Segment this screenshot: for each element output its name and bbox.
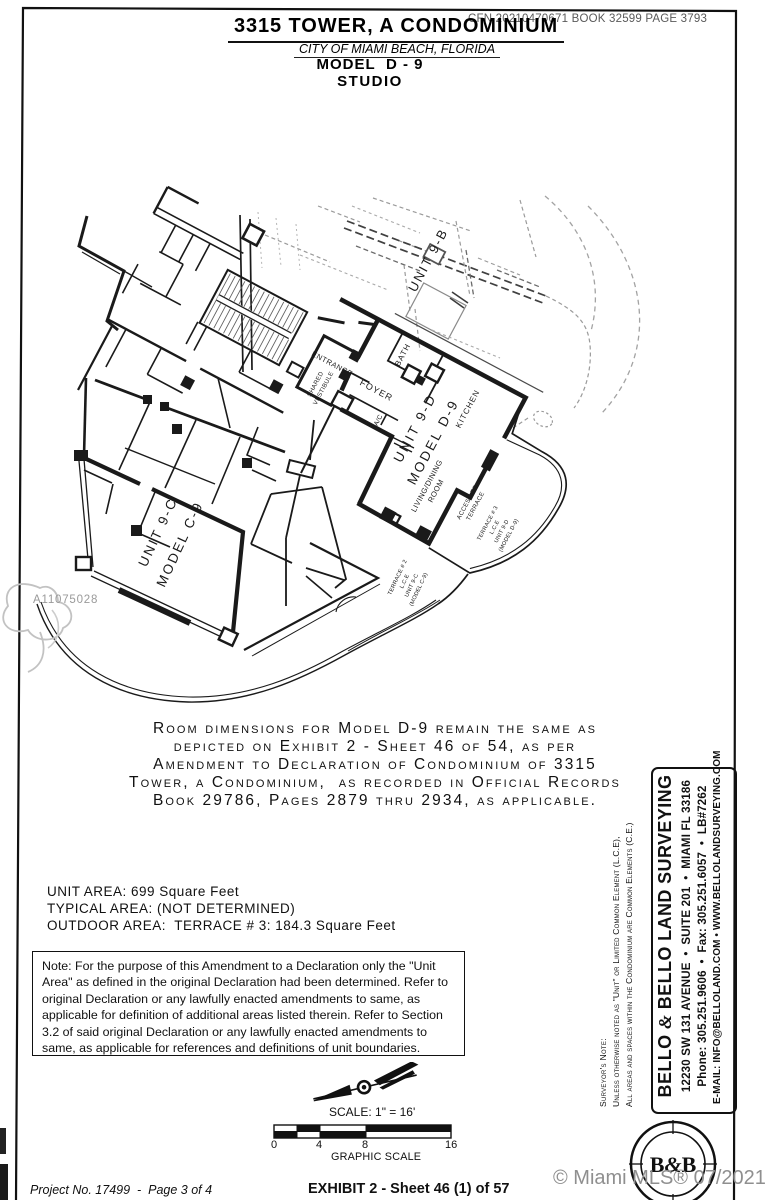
svg-text:UNIT 9-B: UNIT 9-B (405, 225, 451, 294)
svg-text:FOYER: FOYER (358, 377, 394, 403)
